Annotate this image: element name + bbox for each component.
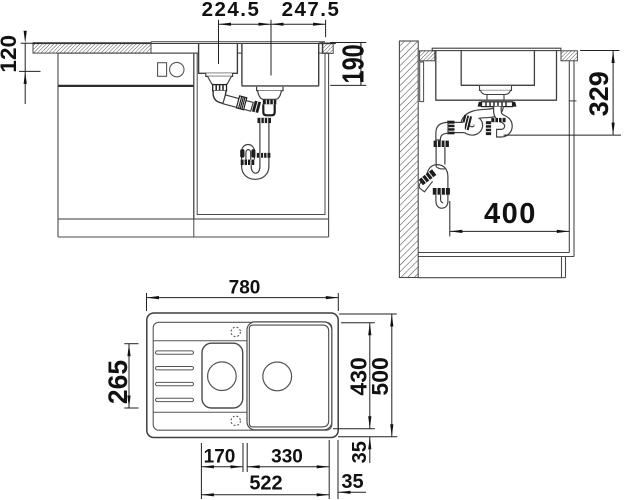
svg-text:170: 170	[204, 446, 236, 467]
svg-text:247.5: 247.5	[282, 0, 341, 21]
svg-text:329: 329	[584, 71, 614, 116]
svg-text:780: 780	[229, 278, 261, 299]
svg-text:224.5: 224.5	[202, 0, 261, 21]
svg-text:330: 330	[271, 446, 303, 467]
svg-text:35: 35	[341, 471, 363, 493]
svg-text:500: 500	[367, 357, 393, 395]
svg-text:522: 522	[249, 473, 282, 495]
svg-text:400: 400	[484, 198, 537, 230]
svg-text:35: 35	[349, 441, 371, 463]
svg-text:120: 120	[0, 35, 21, 73]
svg-text:190: 190	[335, 44, 370, 83]
svg-text:265: 265	[103, 360, 133, 404]
